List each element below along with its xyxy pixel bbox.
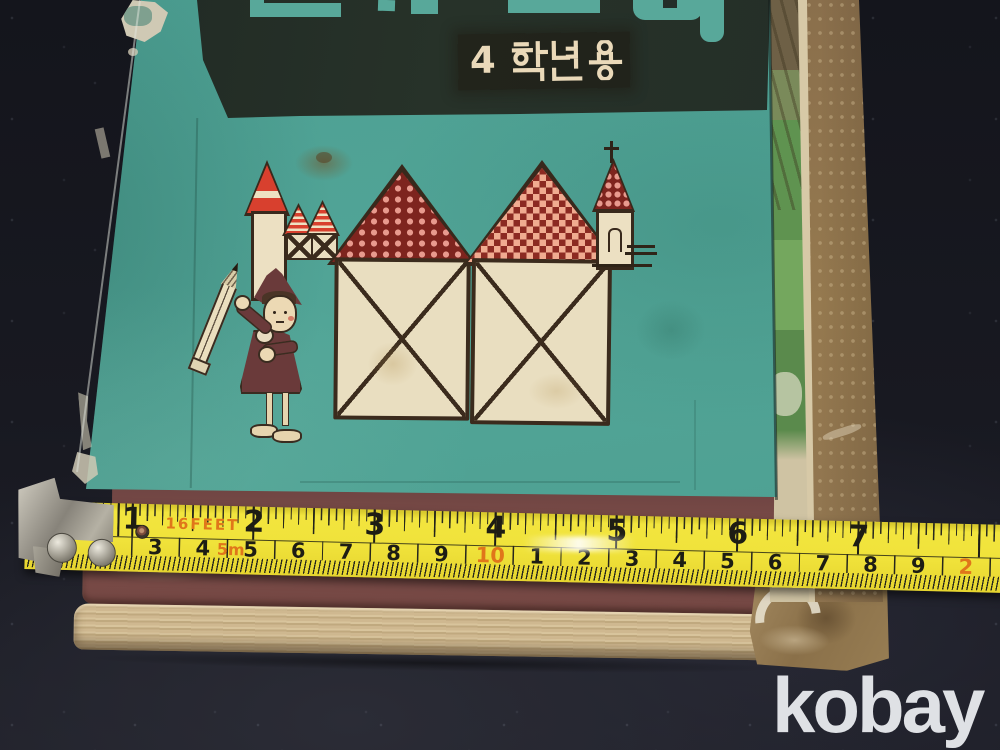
title-letter-fragment bbox=[700, 0, 724, 42]
underbook-page-edges bbox=[73, 603, 776, 660]
cm-number: 6 bbox=[291, 540, 306, 561]
cm-number: 4 bbox=[672, 550, 687, 571]
cm-number: 10 bbox=[475, 545, 505, 567]
grade-label-patch: 4 학년용 bbox=[458, 32, 631, 90]
inch-number: 4 bbox=[485, 513, 507, 544]
cm-number: 7 bbox=[815, 553, 830, 574]
elf-leg bbox=[266, 392, 273, 426]
fence-line bbox=[625, 252, 657, 255]
elf-sandal bbox=[272, 429, 302, 443]
tape-reflection bbox=[523, 536, 635, 552]
tape-meter-label: 5m bbox=[217, 540, 245, 560]
cm-number: 7 bbox=[338, 542, 353, 563]
church-body bbox=[596, 210, 634, 270]
house1-wall bbox=[333, 257, 470, 420]
cm-number: 4 bbox=[195, 538, 210, 559]
cm-number: 9 bbox=[434, 544, 449, 565]
church-door bbox=[608, 228, 622, 252]
fence-line bbox=[627, 245, 655, 248]
crease bbox=[694, 400, 696, 490]
cm-number: 5 bbox=[720, 551, 735, 572]
stain bbox=[316, 152, 332, 163]
stain bbox=[636, 300, 706, 360]
title-letter-fragment bbox=[508, 0, 600, 13]
photo-stage: 4 학년용 bbox=[0, 0, 1000, 750]
inch-number: 7 bbox=[848, 522, 870, 553]
grade-number: 4 bbox=[470, 39, 496, 82]
inch-number: 6 bbox=[727, 519, 749, 550]
inch-number: 2 bbox=[243, 507, 265, 538]
stain bbox=[295, 145, 353, 181]
title-letter-fragment bbox=[250, 3, 341, 17]
elf-hand bbox=[234, 295, 251, 311]
inch-number: 3 bbox=[364, 510, 386, 541]
elf-hand bbox=[258, 346, 276, 363]
cm-number: 5 bbox=[243, 539, 258, 560]
cm-number: 3 bbox=[148, 537, 163, 558]
crease bbox=[300, 481, 680, 483]
cm-number: 6 bbox=[768, 552, 783, 573]
cm-number: 8 bbox=[386, 543, 401, 564]
tape-feet-label: 16FEET bbox=[165, 514, 239, 534]
elf-leg bbox=[282, 392, 289, 426]
small-house-wall bbox=[286, 233, 313, 260]
grade-suffix-strokes bbox=[512, 40, 625, 82]
church-cross bbox=[610, 141, 613, 163]
house2-wall bbox=[470, 258, 612, 426]
cm-number: 8 bbox=[863, 554, 878, 575]
cm-number: 2 bbox=[958, 557, 973, 578]
title-letter-fragment bbox=[378, 0, 395, 11]
cm-number: 9 bbox=[911, 556, 926, 577]
title-letter-fragment bbox=[411, 0, 438, 14]
watermark-text: kobay bbox=[772, 660, 982, 750]
